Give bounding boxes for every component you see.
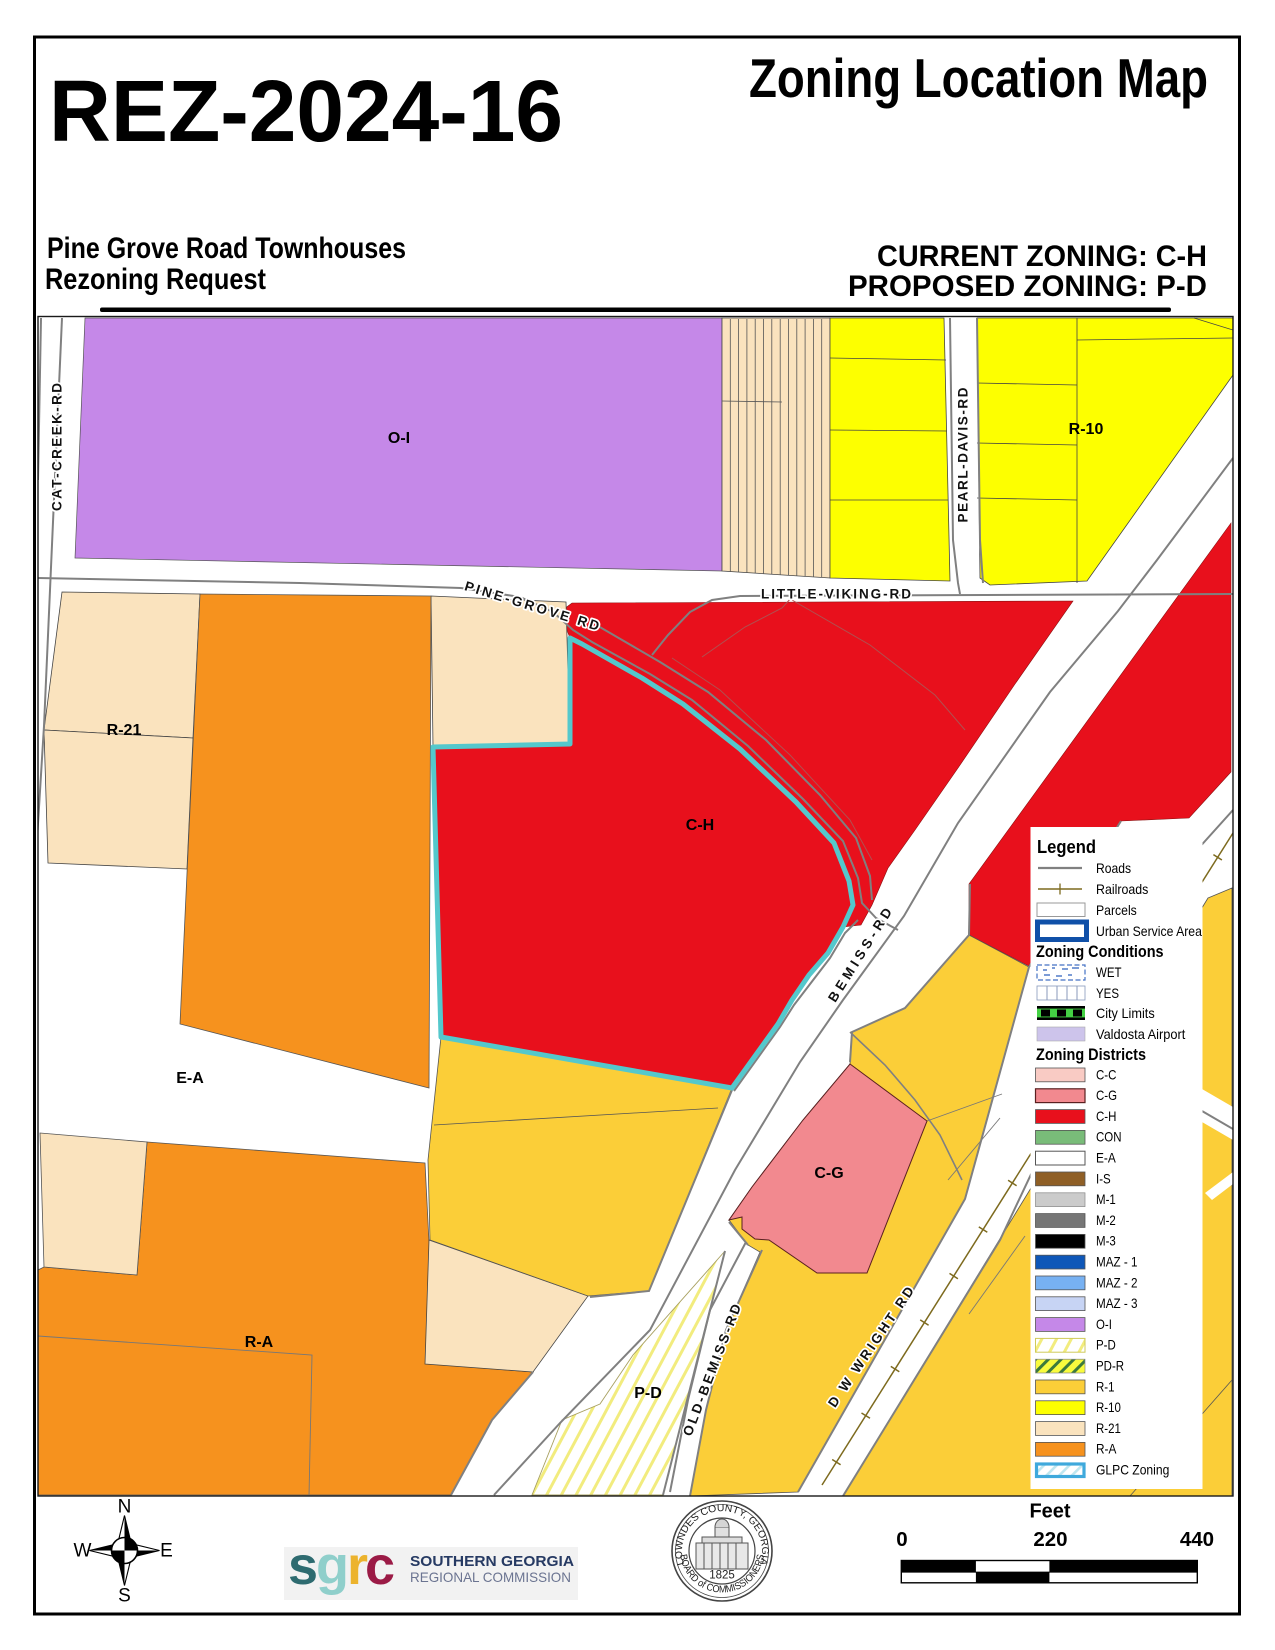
svg-text:Legend: Legend xyxy=(1037,836,1096,857)
svg-text:MAZ - 2: MAZ - 2 xyxy=(1096,1274,1138,1290)
svg-text:M-1: M-1 xyxy=(1096,1191,1116,1207)
svg-text:R-10: R-10 xyxy=(1096,1399,1121,1415)
svg-text:CAT-CREEK-RD: CAT-CREEK-RD xyxy=(50,383,65,511)
svg-text:440: 440 xyxy=(1180,1529,1214,1551)
svg-text:W: W xyxy=(74,1541,92,1562)
svg-text:O-I: O-I xyxy=(388,430,410,447)
svg-text:0: 0 xyxy=(896,1529,907,1551)
svg-text:C-H: C-H xyxy=(686,817,714,834)
svg-text:City Limits: City Limits xyxy=(1096,1005,1155,1021)
svg-text:E-A: E-A xyxy=(176,1070,204,1087)
svg-text:S: S xyxy=(118,1586,131,1607)
svg-text:MAZ - 3: MAZ - 3 xyxy=(1096,1295,1138,1311)
svg-text:1825: 1825 xyxy=(709,1570,735,1582)
svg-text:R-21: R-21 xyxy=(107,722,142,739)
svg-text:C-G: C-G xyxy=(814,1165,843,1182)
svg-text:R-A: R-A xyxy=(1096,1441,1117,1457)
svg-text:REZ-2024-16: REZ-2024-16 xyxy=(49,63,563,160)
svg-text:WET: WET xyxy=(1096,964,1122,980)
svg-text:E-A: E-A xyxy=(1096,1150,1116,1166)
svg-text:M-3: M-3 xyxy=(1096,1233,1116,1249)
svg-text:Railroads: Railroads xyxy=(1096,881,1148,897)
svg-text:Zoning Conditions: Zoning Conditions xyxy=(1036,942,1164,961)
svg-text:g: g xyxy=(316,1536,349,1596)
svg-text:Pine Grove Road Townhouses: Pine Grove Road Townhouses xyxy=(47,232,406,265)
svg-text:Valdosta Airport: Valdosta Airport xyxy=(1096,1026,1185,1042)
svg-text:Zoning Districts: Zoning Districts xyxy=(1036,1045,1146,1064)
svg-text:CON: CON xyxy=(1096,1129,1122,1145)
svg-text:PROPOSED ZONING: P-D: PROPOSED ZONING: P-D xyxy=(848,270,1207,303)
svg-text:P-D: P-D xyxy=(634,1385,662,1402)
svg-text:I-S: I-S xyxy=(1096,1170,1111,1186)
svg-text:N: N xyxy=(118,1497,132,1518)
svg-text:M-2: M-2 xyxy=(1096,1212,1116,1228)
svg-text:GLPC Zoning: GLPC Zoning xyxy=(1096,1462,1169,1478)
svg-text:Zoning Location Map: Zoning Location Map xyxy=(749,47,1208,109)
svg-text:LITTLE-VIKING-RD: LITTLE-VIKING-RD xyxy=(761,587,911,602)
svg-text:c: c xyxy=(365,1536,395,1596)
svg-text:REGIONAL COMMISSION: REGIONAL COMMISSION xyxy=(410,1569,571,1585)
svg-text:220: 220 xyxy=(1033,1529,1067,1551)
svg-text:C-C: C-C xyxy=(1096,1066,1116,1082)
svg-text:CURRENT ZONING: C-H: CURRENT ZONING: C-H xyxy=(877,240,1207,273)
svg-text:Feet: Feet xyxy=(1029,1501,1070,1523)
svg-text:Rezoning Request: Rezoning Request xyxy=(45,263,266,296)
svg-text:R-21: R-21 xyxy=(1096,1420,1121,1436)
svg-text:SOUTHERN GEORGIA: SOUTHERN GEORGIA xyxy=(410,1553,574,1570)
svg-text:R-10: R-10 xyxy=(1069,421,1104,438)
svg-text:O-I: O-I xyxy=(1096,1316,1112,1332)
svg-text:R-A: R-A xyxy=(245,1334,274,1351)
svg-text:PEARL-DAVIS-RD: PEARL-DAVIS-RD xyxy=(956,387,971,522)
svg-text:MAZ - 1: MAZ - 1 xyxy=(1096,1254,1138,1270)
svg-text:YES: YES xyxy=(1096,985,1119,1001)
svg-text:E: E xyxy=(160,1541,173,1562)
svg-text:C-G: C-G xyxy=(1096,1087,1117,1103)
svg-text:Roads: Roads xyxy=(1096,860,1131,876)
svg-text:s: s xyxy=(288,1536,318,1596)
svg-text:C-H: C-H xyxy=(1096,1108,1116,1124)
svg-text:R-1: R-1 xyxy=(1096,1378,1115,1394)
svg-text:P-D: P-D xyxy=(1096,1337,1116,1353)
svg-text:Urban Service Area: Urban Service Area xyxy=(1096,923,1202,939)
svg-text:Parcels: Parcels xyxy=(1096,902,1137,918)
svg-text:PD-R: PD-R xyxy=(1096,1358,1124,1374)
